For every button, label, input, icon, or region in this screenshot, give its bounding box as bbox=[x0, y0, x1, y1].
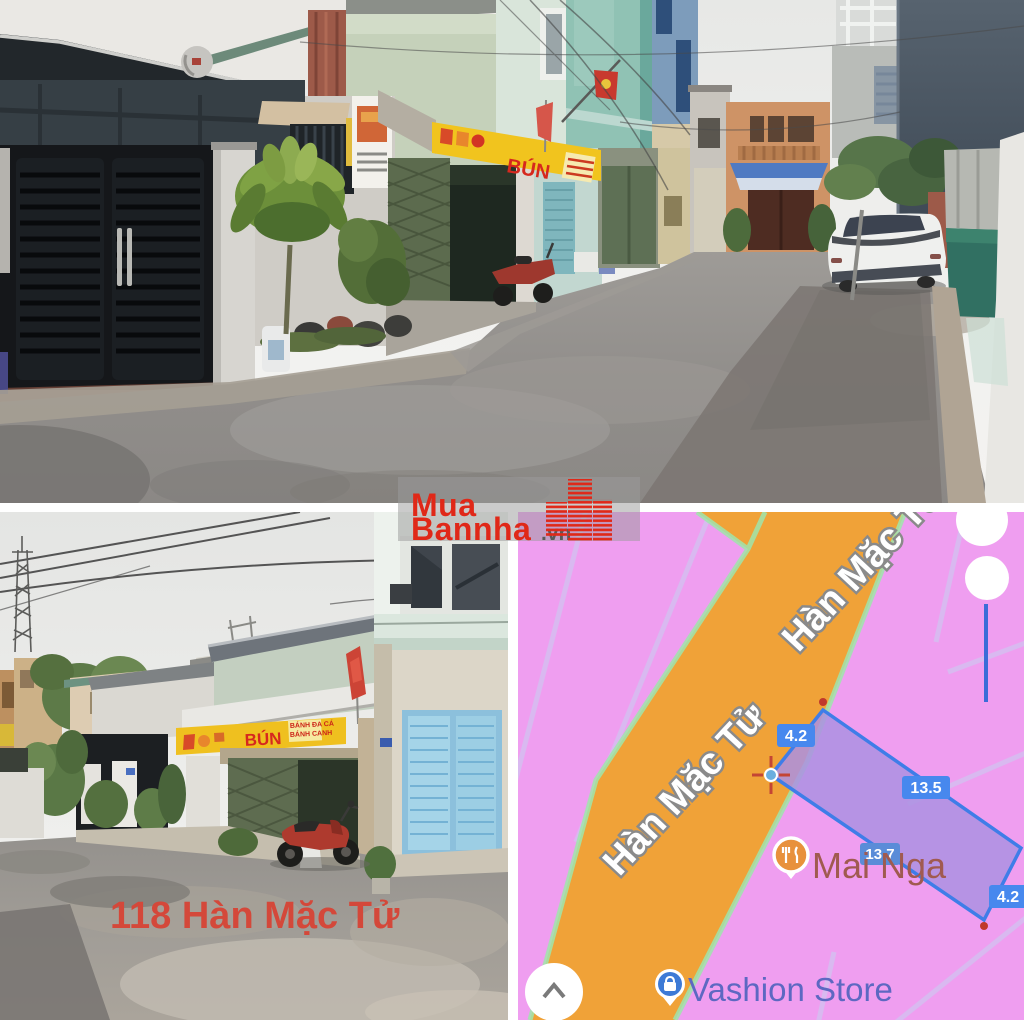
svg-text:13.5: 13.5 bbox=[910, 780, 941, 797]
svg-text:Mai Nga: Mai Nga bbox=[812, 845, 947, 886]
svg-text:118 Hàn Mặc Tử: 118 Hàn Mặc Tử bbox=[110, 895, 400, 937]
svg-text:Vashion Store: Vashion Store bbox=[688, 971, 893, 1008]
svg-text:Bannha: Bannha bbox=[411, 511, 531, 541]
svg-text:BÚN: BÚN bbox=[244, 729, 282, 750]
svg-text:4.2: 4.2 bbox=[785, 728, 807, 745]
svg-text:4.2: 4.2 bbox=[997, 889, 1019, 906]
